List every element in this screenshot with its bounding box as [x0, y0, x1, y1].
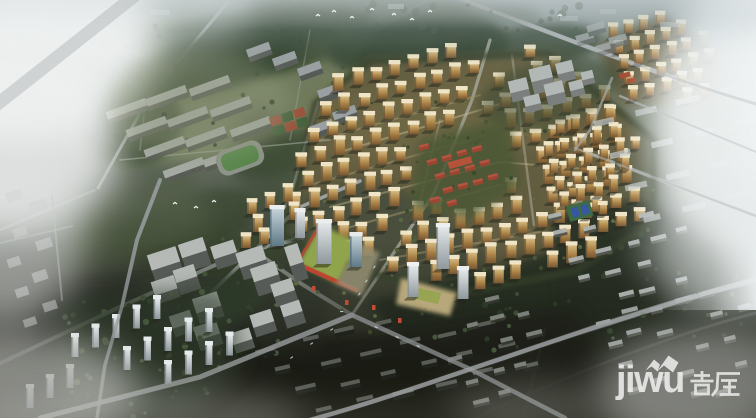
svg-text:jiwu: jiwu: [615, 359, 684, 401]
